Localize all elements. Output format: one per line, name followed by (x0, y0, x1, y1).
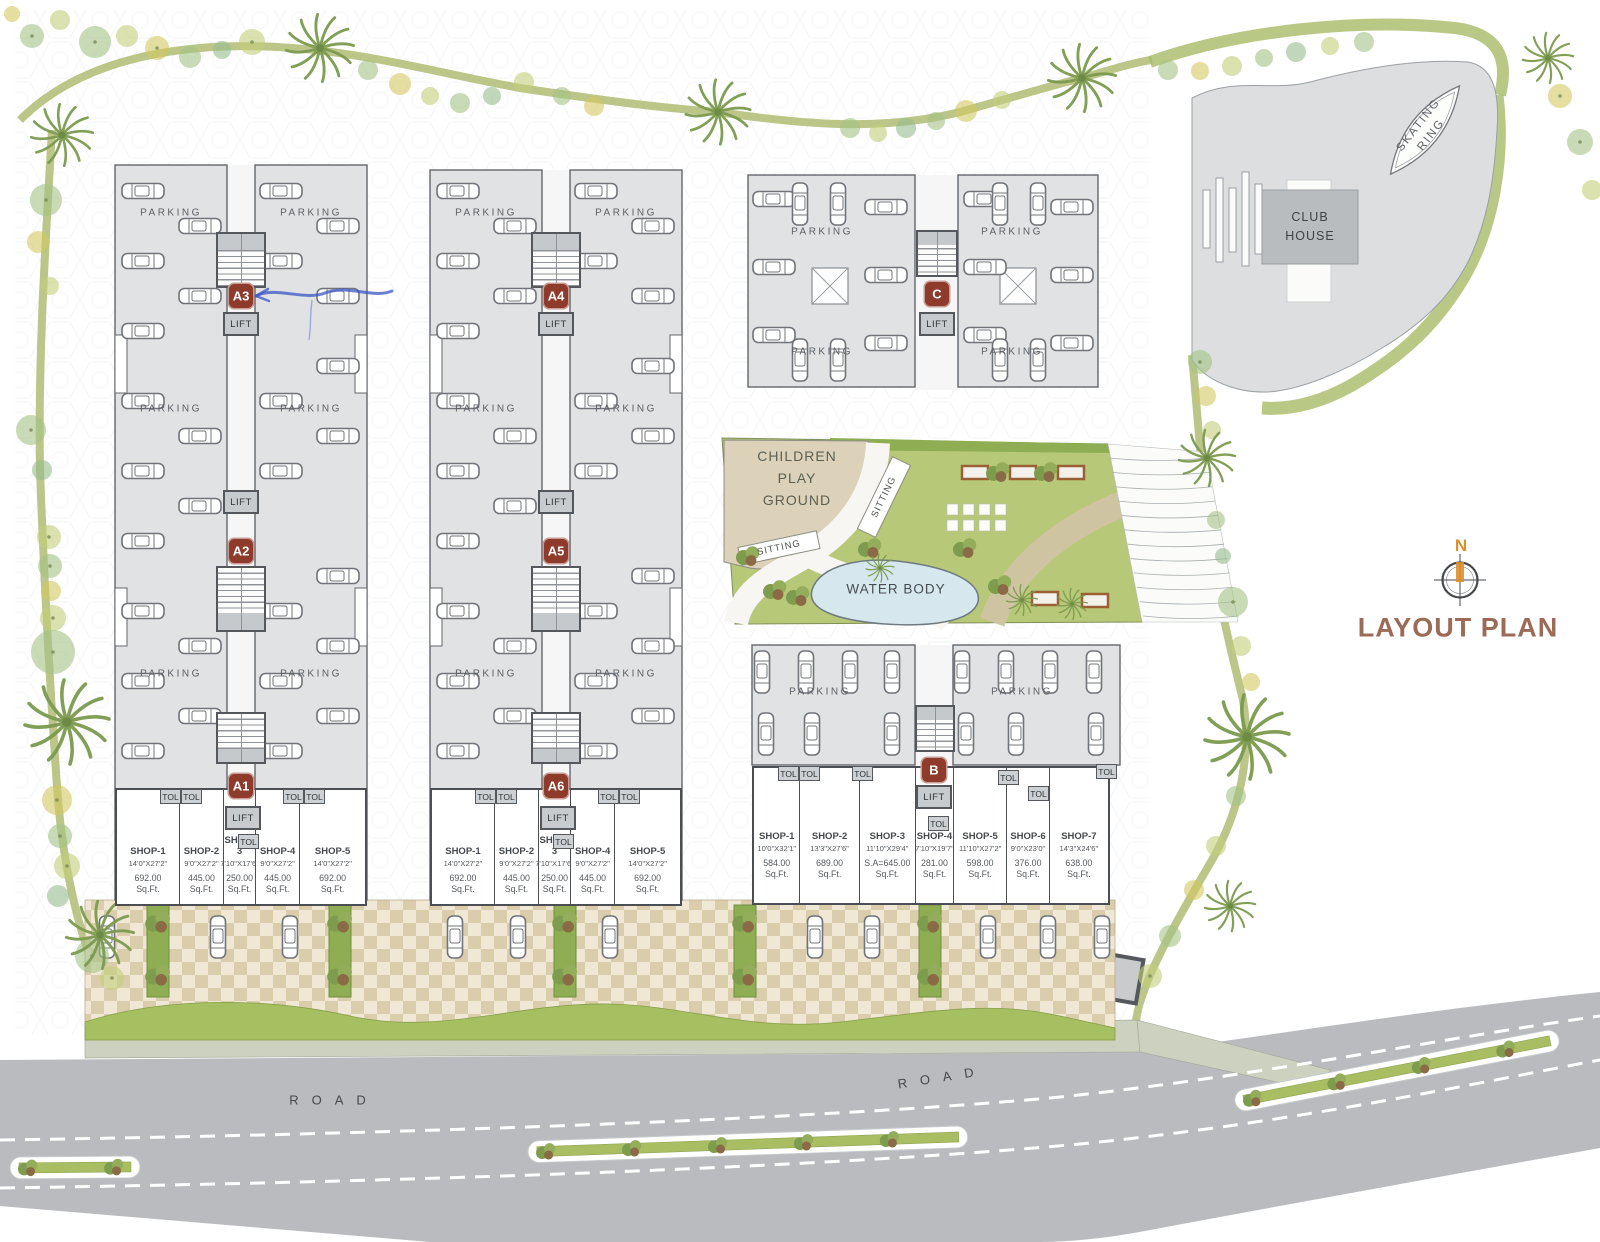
toilet-box: TOL (181, 789, 202, 804)
shop-unit-b-2: SHOP-213'3"X27'6"689.00Sq.Ft. (799, 768, 858, 903)
parking-label: PARKING (455, 404, 517, 415)
children-play-ground-label: CHILDREN PLAY GROUND (757, 445, 837, 511)
shop-unit-a1-5: SHOP-514'0"X27'2"692.00Sq.Ft. (299, 790, 365, 904)
shop-area: 445.00 (503, 873, 530, 883)
block-badge-a5: A5 (543, 538, 570, 565)
block-badge-b: B (921, 757, 948, 784)
staircase (916, 230, 958, 277)
shop-unit-a1-1: SHOP-114'0"X27'2"692.00Sq.Ft. (117, 790, 179, 904)
lift-box: LIFT (919, 312, 955, 336)
shop-area: 281.00 (921, 858, 948, 868)
toilet-box: TOL (928, 816, 949, 831)
shop-dim: 9'0"X27'2" (260, 859, 294, 868)
parking-label: PARKING (140, 669, 202, 680)
shop-unit-b-3: SHOP-311'10"X29'4"S.A=645.00Sq.Ft. (859, 768, 915, 903)
shop-area: 638.00 (1065, 858, 1092, 868)
block-badge-a6: A6 (543, 773, 570, 800)
toilet-box: TOL (496, 789, 517, 804)
shop-dim: 14'0"X27'2" (129, 859, 168, 868)
shop-area: 692.00 (134, 873, 161, 883)
toilet-box: TOL (1096, 764, 1117, 779)
staircase (531, 712, 581, 764)
skating-ring-label: SKATING RING (1393, 95, 1457, 165)
shop-name: SHOP-7 (1061, 831, 1096, 842)
lift-box: LIFT (538, 312, 574, 336)
parking-label: PARKING (991, 687, 1053, 698)
children-line2: PLAY (757, 467, 837, 489)
club-house-line1: CLUB (1285, 208, 1334, 227)
shop-unit-a1-4: SHOP-49'0"X27'2"445.00Sq.Ft. (255, 790, 299, 904)
stair-landing (218, 234, 264, 250)
shop-sqft: Sq.Ft. (636, 884, 659, 894)
shop-sqft: Sq.Ft. (543, 884, 566, 894)
shop-name: SHOP-5 (630, 846, 665, 857)
stair-landing (218, 613, 264, 630)
toilet-box: TOL (160, 789, 181, 804)
shop-area: 689.00 (816, 858, 843, 868)
toilet-box: TOL (598, 789, 619, 804)
parking-label: PARKING (280, 669, 342, 680)
shop-sqft: Sq.Ft. (968, 869, 991, 879)
shop-name: SHOP-3 (870, 831, 905, 842)
club-house-label: CLUB HOUSE (1285, 208, 1334, 246)
parking-label: PARKING (455, 669, 517, 680)
parking-label: PARKING (280, 404, 342, 415)
shop-dim: 7'10"X19'7" (915, 844, 954, 853)
parking-label: PARKING (789, 687, 851, 698)
staircase (216, 232, 266, 288)
shop-sqft: Sq.Ft. (923, 869, 946, 879)
shop-area: 584.00 (763, 858, 790, 868)
shop-name: SHOP-5 (315, 846, 350, 857)
parking-label: PARKING (981, 347, 1043, 358)
toilet-box: TOL (238, 834, 259, 849)
shop-area: 692.00 (449, 873, 476, 883)
shop-sqft: Sq.Ft. (505, 884, 528, 894)
road-label-right: ROAD (897, 1063, 988, 1092)
road-label-left: ROAD (289, 1093, 379, 1108)
shop-dim: 14'0"X27'2" (444, 859, 483, 868)
site-plan: LAYOUT PLAN N ROAD ROAD CHILDREN PLAY GR… (0, 0, 1600, 1242)
labels-layer: LAYOUT PLAN N ROAD ROAD CHILDREN PLAY GR… (0, 0, 1600, 1242)
shop-sqft: Sq.Ft. (266, 884, 289, 894)
shop-sqft: Sq.Ft. (876, 869, 899, 879)
shop-unit-a6-1: SHOP-114'0"X27'2"692.00Sq.Ft. (432, 790, 494, 904)
shop-sqft: Sq.Ft. (818, 869, 841, 879)
block-badge-a3: A3 (228, 283, 255, 310)
shop-area: 598.00 (967, 858, 994, 868)
stair-landing (533, 234, 579, 250)
shop-sqft: Sq.Ft. (321, 884, 344, 894)
shop-sqft: Sq.Ft. (765, 869, 788, 879)
toilet-box: TOL (304, 789, 325, 804)
children-line3: GROUND (757, 489, 837, 511)
toilet-box: TOL (778, 766, 799, 781)
shop-sqft: Sq.Ft. (228, 884, 251, 894)
shop-sqft: Sq.Ft. (136, 884, 159, 894)
parking-label: PARKING (791, 227, 853, 238)
lift-box: LIFT (916, 785, 952, 809)
shop-area: 445.00 (264, 873, 291, 883)
toilet-box: TOL (998, 770, 1019, 785)
shop-name: SHOP-1 (445, 846, 480, 857)
parking-label: PARKING (140, 404, 202, 415)
shop-area: 692.00 (319, 873, 346, 883)
shop-dim: 14'3"X24'6" (1060, 844, 1099, 853)
shop-dim: 7'10"X17'6" (220, 859, 259, 868)
shop-name: SHOP-4 (575, 846, 610, 857)
parking-label: PARKING (455, 208, 517, 219)
shop-name: SHOP-5 (962, 831, 997, 842)
shop-unit-a6-5: SHOP-514'0"X27'2"692.00Sq.Ft. (614, 790, 680, 904)
stair-landing (218, 749, 264, 762)
shop-area: 445.00 (579, 873, 606, 883)
toilet-box: TOL (1028, 786, 1049, 801)
sitting-label-left: SITTING (756, 538, 802, 558)
parking-label: PARKING (595, 404, 657, 415)
staircase (915, 705, 955, 752)
north-label: N (1455, 536, 1467, 556)
sitting-label-right: SITTING (869, 475, 898, 520)
shop-dim: 9'0"X27'2" (499, 859, 533, 868)
staircase (531, 232, 581, 288)
shop-unit-a1-2: SHOP-29'0"X27'2"445.00Sq.Ft. (179, 790, 223, 904)
shop-name: SHOP-1 (759, 831, 794, 842)
water-body-label: WATER BODY (846, 582, 945, 597)
shop-dim: 14'0"X27'2" (313, 859, 352, 868)
page-title: LAYOUT PLAN (1358, 613, 1559, 644)
block-badge-a4: A4 (543, 283, 570, 310)
shop-name: SHOP-4 (917, 831, 952, 842)
parking-label: PARKING (791, 347, 853, 358)
lift-box: LIFT (223, 312, 259, 336)
shop-dim: 9'0"X27'2" (575, 859, 609, 868)
toilet-box: TOL (553, 834, 574, 849)
children-line1: CHILDREN (757, 445, 837, 467)
shop-name: SHOP-2 (812, 831, 847, 842)
shop-dim: 11'10"X27'2" (959, 844, 1001, 853)
shop-name: SHOP-2 (184, 846, 219, 857)
shop-sqft: Sq.Ft. (451, 884, 474, 894)
shop-area: S.A=645.00 (864, 858, 910, 868)
shop-sqft: Sq.Ft. (1016, 869, 1039, 879)
toilet-box: TOL (283, 789, 304, 804)
stair-landing (533, 613, 579, 630)
parking-label: PARKING (140, 208, 202, 219)
stair-landing (918, 232, 956, 245)
staircase (531, 566, 581, 632)
shop-name: SHOP-1 (130, 846, 165, 857)
lift-box: LIFT (225, 806, 261, 830)
lift-box: LIFT (540, 806, 576, 830)
shop-unit-b-5: SHOP-511'10"X27'2"598.00Sq.Ft. (953, 768, 1006, 903)
shop-dim: 13'3"X27'6" (810, 844, 849, 853)
shop-area: 445.00 (188, 873, 215, 883)
lift-box: LIFT (538, 490, 574, 514)
shop-dim: 9'0"X23'0" (1011, 844, 1045, 853)
shop-area: 250.00 (226, 873, 253, 883)
shop-area: 692.00 (634, 873, 661, 883)
stair-landing (917, 707, 953, 720)
parking-label: PARKING (595, 669, 657, 680)
lift-box: LIFT (223, 490, 259, 514)
shop-sqft: Sq.Ft. (581, 884, 604, 894)
stair-landing (533, 749, 579, 762)
parking-label: PARKING (595, 208, 657, 219)
shop-sqft: Sq.Ft. (1067, 869, 1090, 879)
staircase (216, 712, 266, 764)
shop-name: SHOP-4 (260, 846, 295, 857)
shop-dim: 10'0"X32'1" (757, 844, 796, 853)
staircase (216, 566, 266, 632)
block-badge-c: C (924, 281, 951, 308)
toilet-box: TOL (852, 766, 873, 781)
shop-area: 376.00 (1015, 858, 1042, 868)
shop-unit-b-7: SHOP-714'3"X24'6"638.00Sq.Ft. (1049, 768, 1108, 903)
shop-dim: 11'10"X29'4" (866, 844, 908, 853)
shop-sqft: Sq.Ft. (190, 884, 213, 894)
shop-dim: 9'0"X27'2" (184, 859, 218, 868)
shop-name: SHOP-6 (1010, 831, 1045, 842)
shop-area: 250.00 (541, 873, 568, 883)
parking-label: PARKING (280, 208, 342, 219)
shop-unit-b-1: SHOP-110'0"X32'1"584.00Sq.Ft. (754, 768, 799, 903)
toilet-box: TOL (799, 766, 820, 781)
block-badge-a1: A1 (228, 773, 255, 800)
parking-label: PARKING (981, 227, 1043, 238)
block-badge-a2: A2 (228, 538, 255, 565)
club-house-line2: HOUSE (1285, 227, 1334, 246)
shop-name: SHOP-2 (499, 846, 534, 857)
shop-unit-a6-2: SHOP-29'0"X27'2"445.00Sq.Ft. (494, 790, 538, 904)
shop-dim: 14'0"X27'2" (628, 859, 667, 868)
shop-unit-a6-4: SHOP-49'0"X27'2"445.00Sq.Ft. (570, 790, 614, 904)
toilet-box: TOL (475, 789, 496, 804)
shop-dim: 7'10"X17'6" (535, 859, 574, 868)
toilet-box: TOL (619, 789, 640, 804)
